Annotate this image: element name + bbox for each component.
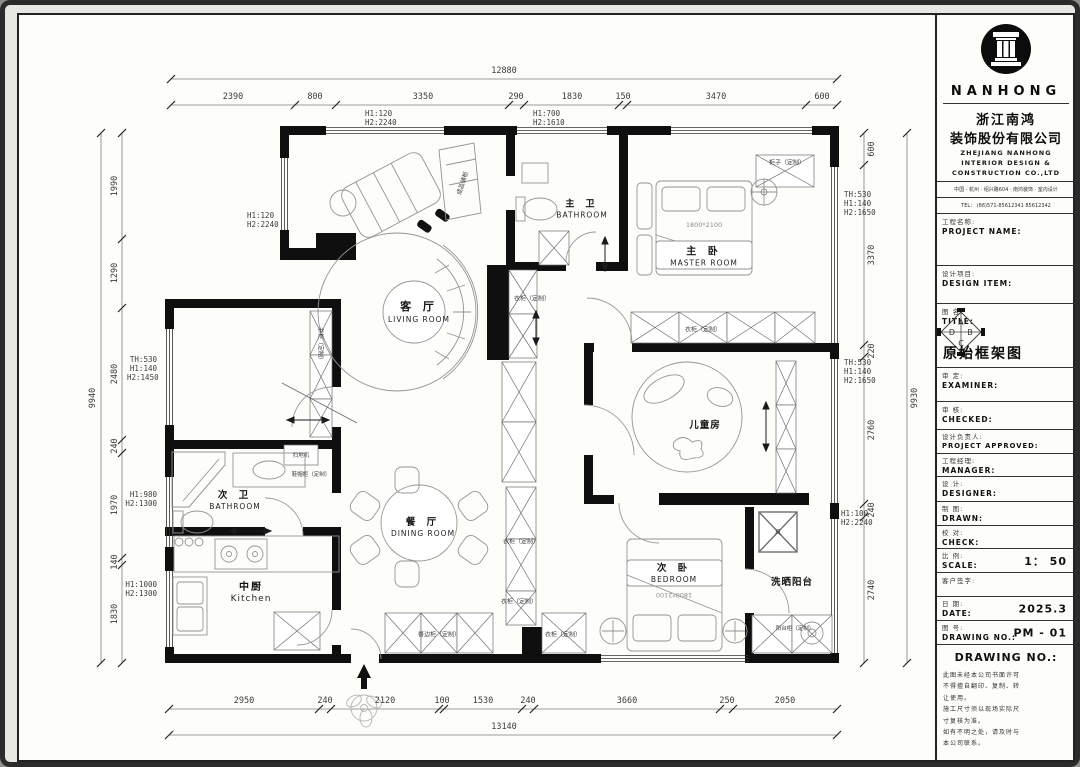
label-vacuum: 扫地机 (293, 451, 310, 459)
drawing-no-value: PM - 01 (1013, 626, 1067, 639)
photo-frame: 12880 2390 800 3350 290 1830 150 3470 60… (0, 0, 1080, 767)
drawing-title: 原始框架图 (943, 343, 1023, 363)
dim-label: 290 (508, 92, 523, 102)
floor-plan-drawing (19, 15, 935, 756)
field-project-approved: 设计负责人: PROJECT APPROVED: (937, 430, 1075, 454)
dim-label: 1990 (110, 176, 120, 196)
dim-label: 240 (520, 696, 535, 706)
scale-value: 1： 50 (1024, 553, 1067, 569)
cabinet-xboxes (274, 155, 832, 653)
field-checked: 审 核: CHECKED: (937, 402, 1075, 430)
room-label-bedroom2: 次 卧BEDROOM (651, 560, 697, 584)
brand-name: NANHONG (941, 84, 1071, 99)
room-label-dining: 餐 厅DINING ROOM (391, 514, 455, 538)
dim-label: 150 (615, 92, 630, 102)
room-label-master-bath: 主 卫BATHROOM (556, 197, 607, 220)
height-annotation: H1:700H2:1610 (533, 109, 565, 127)
dim-label: 1530 (473, 696, 493, 706)
label-wardrobe: 衣柜（定制） (545, 630, 581, 639)
dim-label: 1830 (562, 92, 582, 102)
company-address: 中国 · 杭州 · 绍兴路604 · 南鸿装饰 · 室内设计 (937, 182, 1075, 198)
notes-title: DRAWING NO.: (943, 651, 1069, 664)
field-examiner: 审 定: EXAMINER: (937, 368, 1075, 402)
field-check: 校 对: CHECK: (937, 526, 1075, 549)
svg-text:A: A (958, 318, 964, 327)
field-design-item: 设计项目: DESIGN ITEM: (937, 266, 1075, 304)
room-label-kids: 儿童房 (689, 417, 721, 431)
dim-label: 1830 (110, 604, 120, 624)
label-cabinet: 柜子（定制） (769, 158, 805, 167)
room-label-kitchen: 中厨Kitchen (231, 578, 272, 604)
svg-text:D: D (949, 328, 955, 337)
field-project-name: 工程名称: PROJECT NAME: (937, 214, 1075, 266)
label-wardrobe: 衣柜（定制） (685, 325, 721, 334)
label-bookcase: 书柜（定制） (317, 327, 326, 363)
room-label-second-bath: 次 卫BATHROOM (209, 487, 260, 511)
room-label-master: 主 卧MASTER ROOM (670, 243, 738, 268)
dim-total-label: 13140 (491, 722, 517, 732)
height-annotation: TH:530H1:140H2:1650 (844, 190, 876, 217)
entry-arrow (357, 664, 371, 689)
dim-total-label: 9930 (910, 388, 920, 408)
notes-block: DRAWING NO.: 此图未经本公司书面许可 不得擅自翻印、复制、转 让使用… (937, 645, 1075, 754)
height-annotation: TH:530H1:140H2:1450 (127, 355, 157, 382)
field-title: 图 名: TITLE: A B C D 原始框架图 (937, 304, 1075, 368)
company-name-en: INTERIOR DESIGN & (941, 159, 1071, 167)
height-annotation: TH:530H1:140H2:1650 (844, 358, 876, 385)
dim-label: 600 (867, 141, 877, 156)
height-annotation: H1:1000H2:1300 (119, 580, 157, 598)
dim-label: 240 (110, 438, 120, 453)
nanhong-logo-icon (978, 21, 1034, 77)
height-annotation: H1:120H2:2240 (247, 211, 279, 229)
company-name-en: ZHEJIANG NANHONG (941, 149, 1071, 157)
field-date: 日 期: DATE: 2025.3 (937, 597, 1075, 621)
height-annotation: H1:100H2:2240 (841, 509, 873, 527)
dim-label: 600 (814, 92, 829, 102)
label-air-duct: 风 (775, 528, 781, 537)
bed-size-label: 1800*2100 (686, 221, 722, 229)
bed-size-label: 1800*2100 (656, 591, 692, 599)
label-shoe-cabinet: 鞋帽柜（定制） (292, 470, 331, 478)
dim-label: 3660 (617, 696, 637, 706)
company-tel: TEL： (86)571-85612341 85612342 (937, 198, 1075, 214)
company-name-cn: 装饰股份有限公司 (941, 128, 1071, 147)
label-wardrobe: 衣柜（定制） (501, 597, 537, 606)
dim-total-label: 12880 (491, 66, 517, 76)
field-designer: 设 计: DESIGNER: (937, 477, 1075, 502)
dim-label: 250 (719, 696, 734, 706)
dim-label: 3370 (867, 245, 877, 265)
dim-label: 1290 (110, 263, 120, 283)
dim-label: 240 (317, 696, 332, 706)
label-wardrobe: 衣柜（定制） (503, 537, 539, 546)
dim-label: 2950 (234, 696, 254, 706)
drawing-sheet: 12880 2390 800 3350 290 1830 150 3470 60… (17, 13, 1075, 762)
dim-label: 100 (434, 696, 449, 706)
room-label-living: 客 厅LIVING ROOM (388, 298, 450, 324)
date-value: 2025.3 (1019, 602, 1067, 615)
dim-label: 3350 (413, 92, 433, 102)
dim-label: 2120 (375, 696, 395, 706)
title-block: NANHONG 浙江南鸿 装饰股份有限公司 ZHEJIANG NANHONG I… (935, 15, 1075, 760)
dim-total-label: 9940 (88, 388, 98, 408)
label-balcony-cabinet: 阳台柜（定制） (776, 624, 815, 632)
dim-label: 2740 (867, 580, 877, 600)
height-annotation: H1:980H2:1300 (124, 490, 157, 508)
company-header: NANHONG 浙江南鸿 装饰股份有限公司 ZHEJIANG NANHONG I… (937, 15, 1075, 182)
dim-label: 2390 (223, 92, 243, 102)
height-annotation: H1:120H2:2240 (365, 109, 397, 127)
dim-label: 2050 (775, 696, 795, 706)
room-label-balcony: 洗晒阳台 (771, 574, 813, 588)
field-manager: 工程经理: MANAGER: (937, 454, 1075, 477)
dim-label: 3470 (706, 92, 726, 102)
field-scale: 比 例: SCALE: 1： 50 (937, 549, 1075, 573)
dim-label: 2760 (867, 420, 877, 440)
dim-label: 220 (867, 343, 877, 358)
dim-label: 140 (110, 554, 120, 569)
field-drawing-no: 图 号: DRAWING NO.: PM - 01 (937, 621, 1075, 645)
label-sideboard: 餐边柜（定制） (418, 630, 460, 639)
svg-text:B: B (967, 328, 973, 337)
label-wardrobe: 衣柜（定制） (514, 294, 550, 303)
dim-label: 800 (307, 92, 322, 102)
field-client-signature: 客户签字: (937, 573, 1075, 597)
company-name-cn: 浙江南鸿 (941, 109, 1071, 128)
company-name-en: CONSTRUCTION CO.,LTD (941, 169, 1071, 177)
dim-label: 2480 (110, 364, 120, 384)
dim-label: 1970 (110, 495, 120, 515)
field-drawn: 制 图: DRAWN: (937, 502, 1075, 526)
